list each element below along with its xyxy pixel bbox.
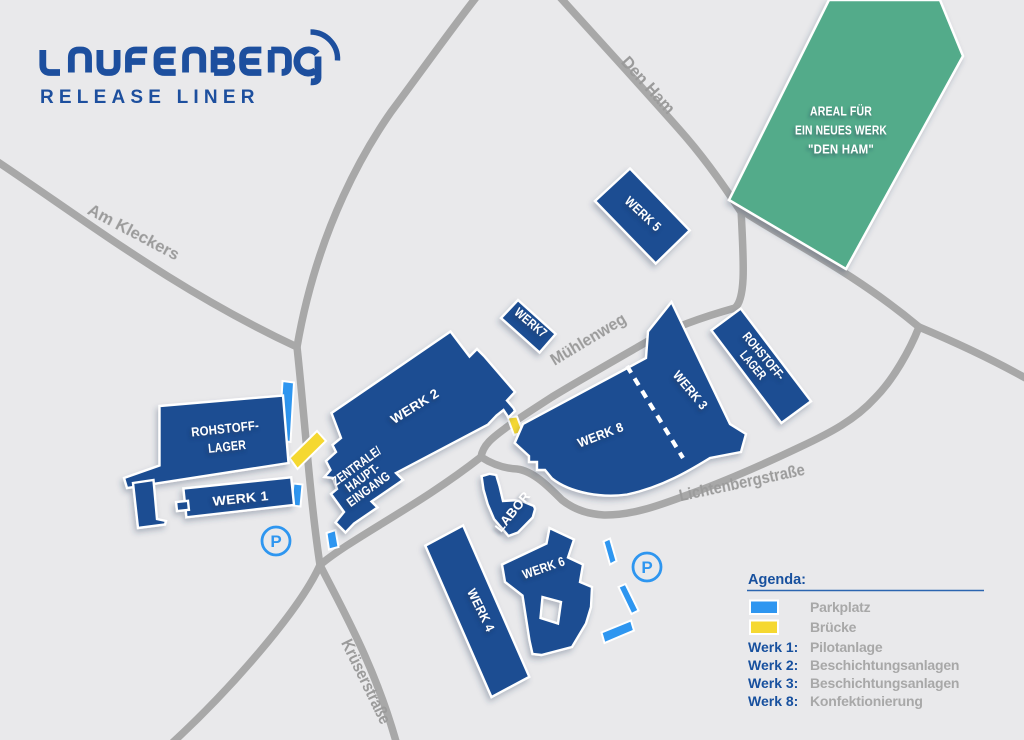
svg-text:Agenda:: Agenda: [748,572,806,588]
svg-text:Parkplatz: Parkplatz [810,599,871,615]
svg-text:RELEASE LINER: RELEASE LINER [40,87,260,108]
svg-text:Pilotanlage: Pilotanlage [810,639,883,655]
svg-text:P: P [641,558,652,577]
svg-text:Werk 8:: Werk 8: [748,693,798,709]
svg-text:AREAL FÜR: AREAL FÜR [810,104,872,119]
svg-text:EIN NEUES WERK: EIN NEUES WERK [795,123,887,138]
svg-text:Brücke: Brücke [810,619,857,635]
svg-text:"DEN HAM": "DEN HAM" [808,142,874,157]
svg-text:Beschichtungsanlagen: Beschichtungsanlagen [810,675,959,691]
svg-text:Werk 3:: Werk 3: [748,675,798,691]
svg-text:Beschichtungsanlagen: Beschichtungsanlagen [810,657,959,673]
svg-text:P: P [270,532,281,551]
svg-text:Konfektionierung: Konfektionierung [810,693,923,709]
svg-text:Werk 1:: Werk 1: [748,639,798,655]
svg-text:Werk 2:: Werk 2: [748,657,798,673]
